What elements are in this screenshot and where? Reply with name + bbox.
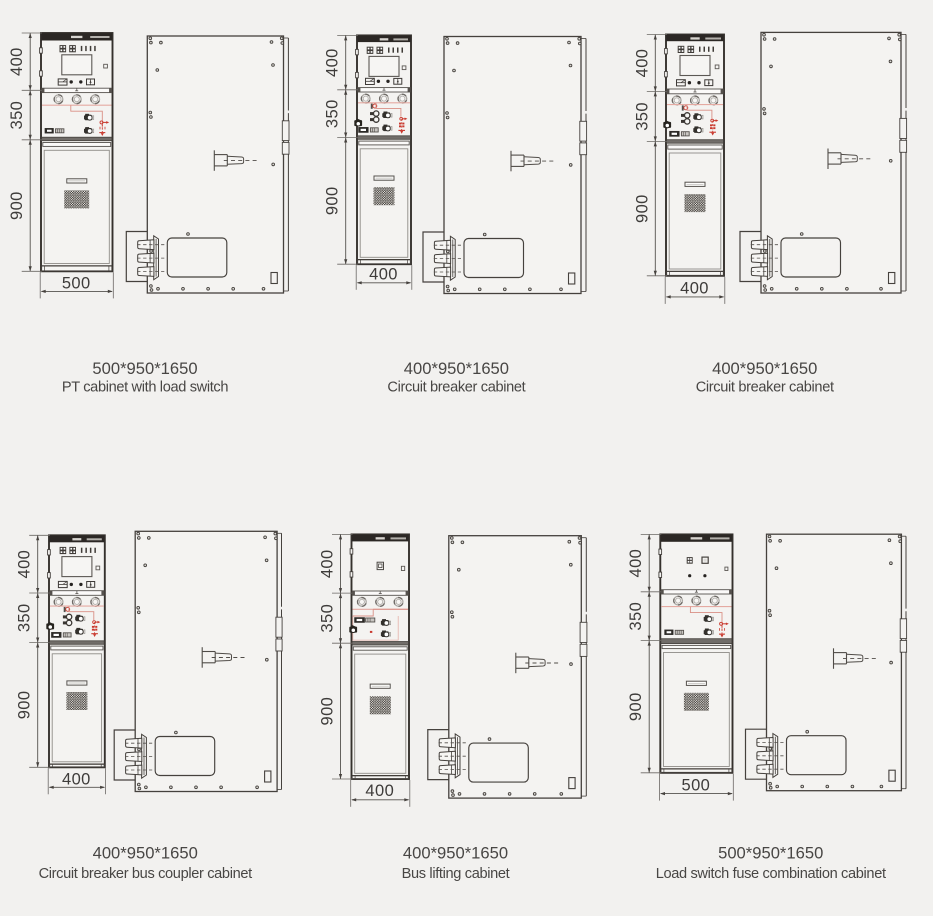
svg-text:400: 400 [627,549,645,578]
svg-text:350: 350 [324,99,342,128]
svg-text:900: 900 [319,697,337,726]
svg-text:900: 900 [8,191,26,220]
svg-text:900: 900 [627,692,645,721]
svg-text:500*950*1650: 500*950*1650 [718,843,823,862]
svg-text:500: 500 [682,777,711,795]
svg-text:400*950*1650: 400*950*1650 [712,359,817,378]
svg-text:500*950*1650: 500*950*1650 [92,359,197,378]
svg-text:350: 350 [319,604,337,633]
svg-text:900: 900 [16,691,34,720]
svg-text:400: 400 [324,48,342,77]
svg-text:400: 400 [319,549,337,578]
svg-text:400: 400 [8,47,26,76]
svg-text:400*950*1650: 400*950*1650 [404,359,509,378]
svg-text:400*950*1650: 400*950*1650 [403,843,508,862]
svg-text:350: 350 [16,603,34,632]
svg-text:400: 400 [680,279,709,297]
svg-text:350: 350 [8,101,26,130]
svg-text:Load switch fuse combination c: Load switch fuse combination cabinet [656,866,886,882]
svg-text:900: 900 [633,194,651,223]
svg-text:350: 350 [627,602,645,631]
svg-text:400: 400 [633,49,651,78]
svg-text:400: 400 [365,782,394,800]
svg-text:400: 400 [16,550,34,579]
svg-text:400: 400 [62,771,91,789]
svg-text:900: 900 [324,186,342,215]
svg-text:Circuit breaker bus coupler ca: Circuit breaker bus coupler cabinet [39,866,253,882]
svg-text:500: 500 [62,275,91,293]
svg-text:Circuit breaker cabinet: Circuit breaker cabinet [696,379,834,395]
svg-text:350: 350 [633,102,651,131]
svg-text:400*950*1650: 400*950*1650 [93,843,198,862]
svg-text:Bus lifting cabinet: Bus lifting cabinet [402,866,510,882]
svg-text:Circuit breaker cabinet: Circuit breaker cabinet [387,379,525,395]
svg-text:400: 400 [369,266,398,284]
svg-text:PT cabinet with load switch: PT cabinet with load switch [62,379,229,395]
